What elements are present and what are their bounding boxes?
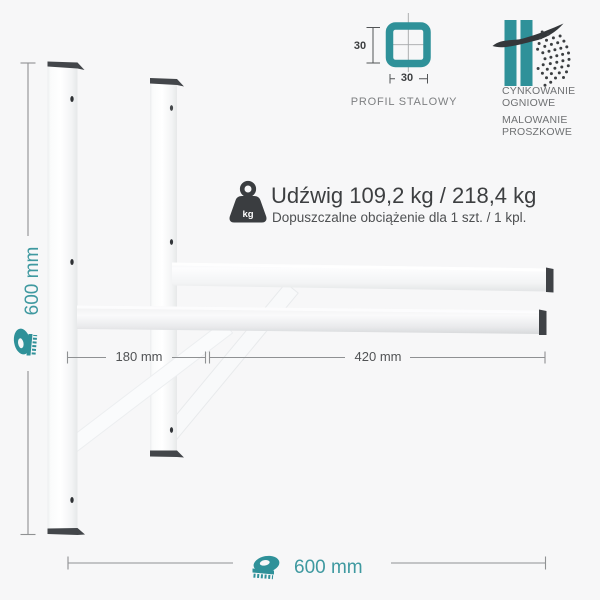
bracket-front-arm <box>77 306 547 336</box>
arm-end-cap <box>539 310 547 336</box>
coating-label-line3: MALOWANIE <box>502 115 575 127</box>
profile-side-size-label: 30 <box>348 40 372 52</box>
weight-icon: kg <box>230 183 267 222</box>
screw-hole <box>170 105 173 111</box>
width-dimension-label: 600 mm <box>294 557 363 579</box>
load-capacity-title: Udźwig 109,2 kg / 218,4 kg <box>271 183 536 209</box>
arm-end-cap <box>546 268 554 293</box>
screw-hole <box>70 497 73 503</box>
screw-hole <box>70 259 73 265</box>
coating-icon <box>493 20 571 87</box>
coating-label-line4: PROSZKOWE <box>502 127 575 139</box>
bracket-front-wall-post <box>48 62 86 536</box>
tape-measure-icon-bottom <box>252 554 280 577</box>
coating-label-line1: CYNKOWANIE <box>502 86 575 98</box>
steel-profile-label: PROFIL STALOWY <box>324 96 484 108</box>
segment-back-dimension-label: 180 mm <box>104 349 174 364</box>
screw-hole <box>70 96 73 102</box>
tape-measure-icon-left <box>12 327 35 355</box>
wall-bracket <box>48 62 554 536</box>
coating-label-line2: OGNIOWE <box>502 98 575 110</box>
weight-icon-label: kg <box>242 209 253 220</box>
profile-bottom-size-label: 30 <box>395 72 419 84</box>
coating-labels: CYNKOWANIE OGNIOWE MALOWANIE PROSZKOWE <box>502 86 575 138</box>
product-illustration: kg PROFIL STALOWY 30 30 CYNKOWANIE OGNIO… <box>0 0 600 600</box>
screw-hole <box>170 239 173 245</box>
screw-hole <box>170 427 173 433</box>
bracket-rear-arm <box>172 263 554 293</box>
spray-dots <box>536 31 570 87</box>
segment-front-dimension-label: 420 mm <box>343 349 413 364</box>
load-capacity-subtitle: Dopuszczalne obciążenie dla 1 szt. / 1 k… <box>272 210 526 225</box>
height-dimension-label: 600 mm <box>22 236 44 326</box>
